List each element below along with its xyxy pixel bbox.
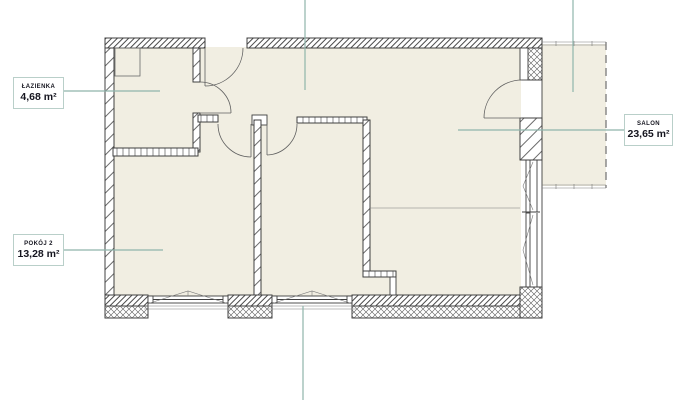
right-wall [520, 38, 542, 318]
balcony-floor [542, 44, 606, 186]
room-name: ŁAZIENKA [22, 84, 56, 90]
floor-fill [114, 44, 606, 296]
floor-plan: ŁAZIENKA 4,68 m² POKÓJ 2 13,28 m² SALON … [0, 0, 692, 400]
window-salon-upper [522, 160, 540, 212]
room-label-pokoj2: POKÓJ 2 13,28 m² [13, 234, 64, 266]
window-salon-lower [522, 213, 540, 287]
floor-plan-drawing [0, 0, 692, 400]
room-label-salon: SALON 23,65 m² [624, 114, 673, 146]
room-area: 23,65 m² [627, 128, 669, 140]
room-name: POKÓJ 2 [24, 241, 53, 247]
room-area: 4,68 m² [20, 91, 56, 103]
room-name: SALON [637, 121, 660, 127]
room-label-lazienka: ŁAZIENKA 4,68 m² [13, 77, 64, 109]
windows-right [522, 160, 540, 287]
room-area: 13,28 m² [17, 248, 59, 260]
